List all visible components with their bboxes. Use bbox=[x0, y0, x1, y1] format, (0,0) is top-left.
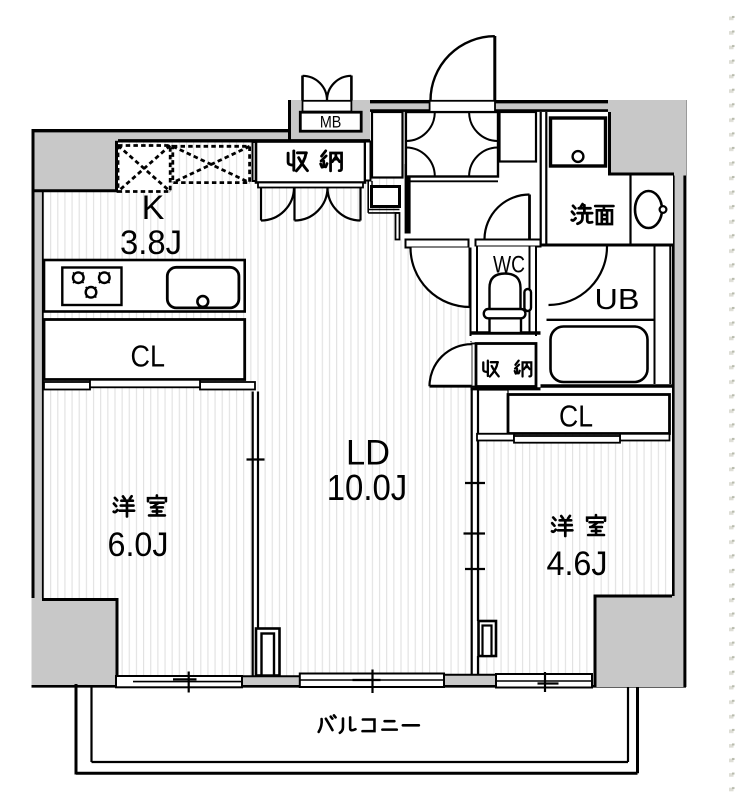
svg-text:MB: MB bbox=[320, 113, 342, 131]
svg-text:K: K bbox=[142, 189, 165, 227]
svg-text:UB: UB bbox=[595, 284, 640, 316]
svg-text:CL: CL bbox=[559, 398, 593, 433]
svg-text:CL: CL bbox=[131, 338, 166, 373]
svg-text:10.0J: 10.0J bbox=[327, 467, 408, 508]
svg-text:3.8J: 3.8J bbox=[120, 224, 182, 262]
svg-text:WC: WC bbox=[493, 252, 525, 279]
svg-text:4.6J: 4.6J bbox=[547, 545, 608, 583]
svg-text:6.0J: 6.0J bbox=[108, 526, 169, 564]
